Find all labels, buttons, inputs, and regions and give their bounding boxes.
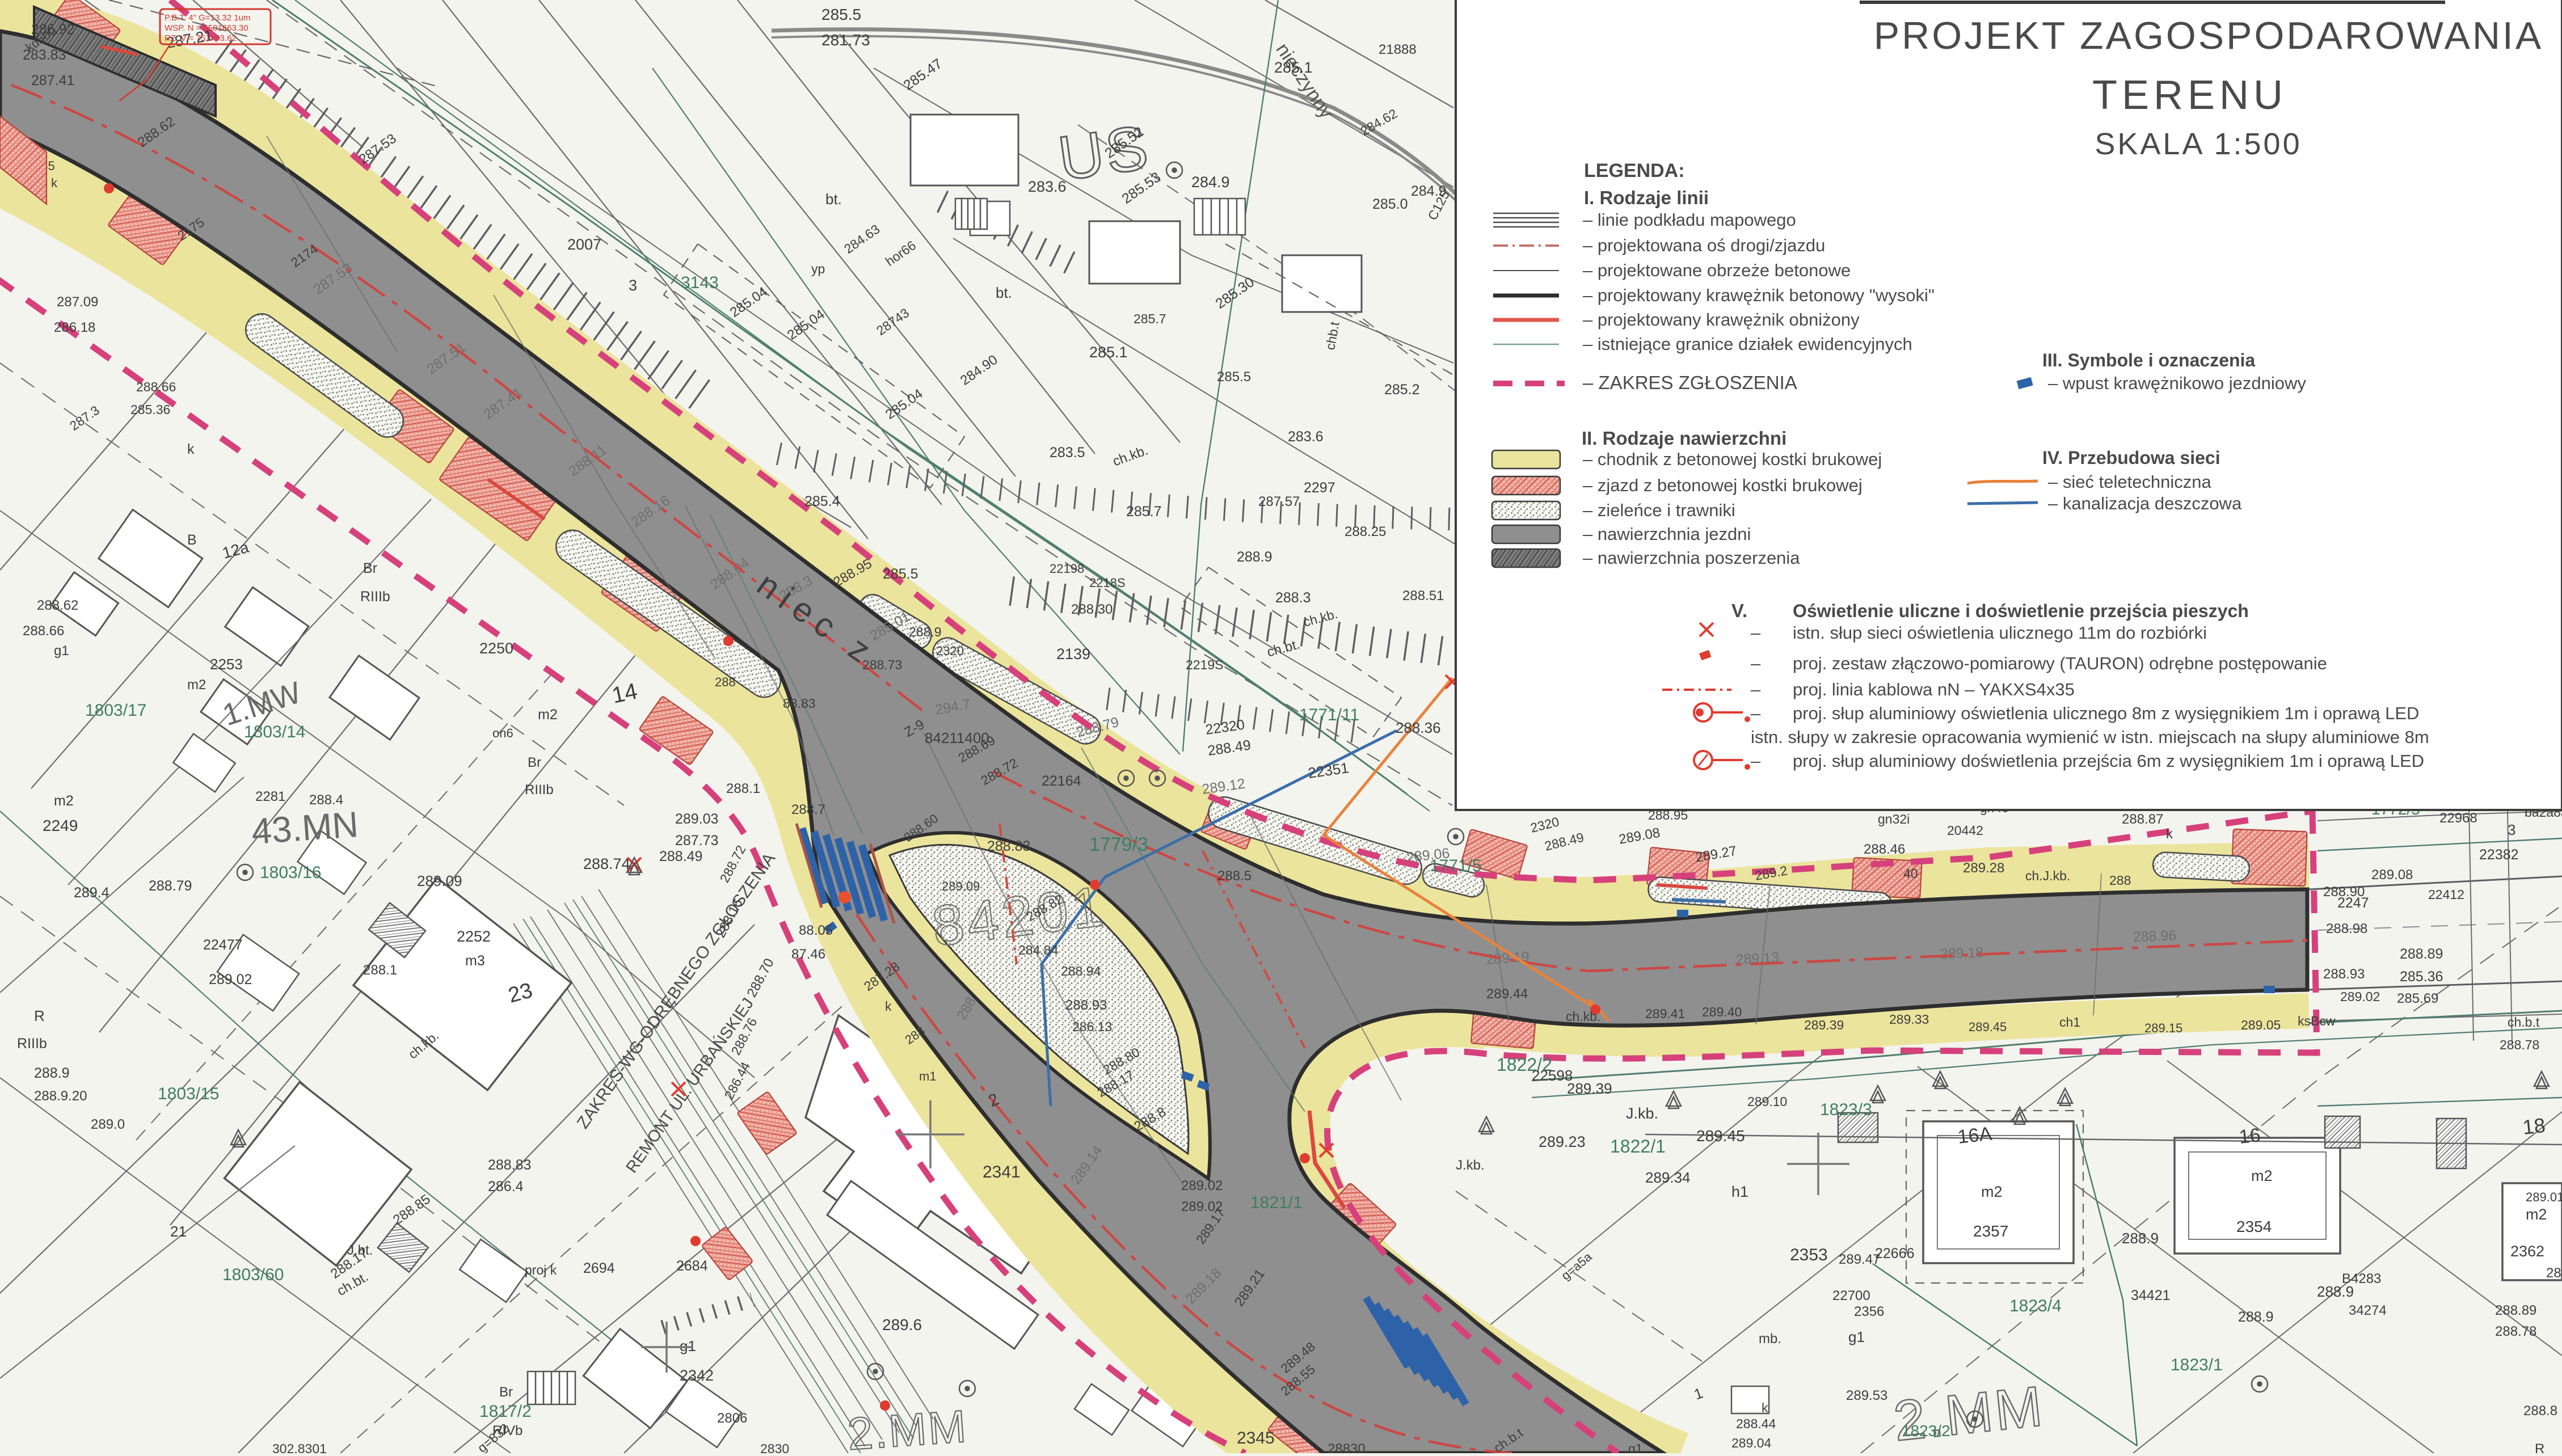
svg-text:288.9: 288.9 bbox=[909, 624, 942, 639]
svg-text:1803/16: 1803/16 bbox=[260, 863, 321, 882]
svg-text:1817/2: 1817/2 bbox=[479, 1402, 532, 1421]
svg-text:– projektowane obrzeże betono: – projektowane obrzeże betonowe bbox=[1583, 260, 1851, 280]
svg-text:g1: g1 bbox=[1628, 1441, 1643, 1453]
svg-text:281.73: 281.73 bbox=[821, 31, 870, 49]
svg-text:k: k bbox=[885, 999, 892, 1014]
svg-text:285.5: 285.5 bbox=[1217, 369, 1251, 385]
svg-text:1821/1: 1821/1 bbox=[1250, 1193, 1303, 1212]
svg-text:1823/4: 1823/4 bbox=[2009, 1297, 2062, 1315]
svg-text:B4283: B4283 bbox=[2342, 1271, 2381, 1286]
svg-text:istn. słup sieci oświetlenia u: istn. słup sieci oświetlenia ulicznego 1… bbox=[1793, 623, 2207, 643]
svg-text:288.83: 288.83 bbox=[488, 1157, 531, 1173]
svg-text:289.08: 289.08 bbox=[2371, 867, 2413, 883]
svg-text:283.6: 283.6 bbox=[1288, 429, 1324, 445]
svg-text:IV. Przebudowa sieci: IV. Przebudowa sieci bbox=[2042, 448, 2220, 468]
svg-text:302.8301: 302.8301 bbox=[272, 1441, 327, 1453]
svg-text:2297: 2297 bbox=[1304, 480, 1335, 496]
svg-text:istn. słupy w zakresie opracow: istn. słupy w zakresie opracowania wymie… bbox=[1751, 727, 2429, 747]
svg-text:288.9: 288.9 bbox=[2238, 1309, 2274, 1325]
svg-text:288.78: 288.78 bbox=[2500, 1037, 2539, 1052]
svg-text:P.B.T. 4" G=13.32 1um: P.B.T. 4" G=13.32 1um bbox=[165, 13, 250, 23]
svg-text:RIIIb: RIIIb bbox=[360, 589, 390, 605]
svg-text:289.15: 289.15 bbox=[2144, 1021, 2182, 1035]
svg-text:1771/5: 1771/5 bbox=[1430, 856, 1482, 875]
svg-text:288.93: 288.93 bbox=[2323, 967, 2365, 982]
svg-text:g1: g1 bbox=[680, 1337, 696, 1354]
svg-text:– projektowany krawężnik obni: – projektowany krawężnik obniżony bbox=[1583, 310, 1860, 330]
svg-text:285.5: 285.5 bbox=[883, 566, 918, 582]
svg-text:J.bt.: J.bt. bbox=[347, 1243, 373, 1258]
svg-text:RZ. V = 751+43.62: RZ. V = 751+43.62 bbox=[165, 33, 237, 43]
svg-text:k: k bbox=[1762, 1400, 1768, 1415]
svg-text:1823/2: 1823/2 bbox=[1902, 1422, 1950, 1440]
svg-text:16: 16 bbox=[2238, 1124, 2262, 1148]
svg-text:2345: 2345 bbox=[1237, 1429, 1275, 1447]
svg-text:288.74: 288.74 bbox=[583, 855, 630, 872]
svg-text:288.4: 288.4 bbox=[309, 792, 343, 808]
svg-text:288.49: 288.49 bbox=[659, 849, 702, 864]
svg-text:21888: 21888 bbox=[1379, 42, 1417, 57]
svg-text:34274: 34274 bbox=[2349, 1303, 2387, 1318]
svg-text:288.94: 288.94 bbox=[1061, 964, 1101, 978]
svg-text:proj k: proj k bbox=[525, 1263, 557, 1277]
svg-text:2139: 2139 bbox=[1056, 645, 1090, 662]
svg-text:289.02: 289.02 bbox=[2340, 989, 2380, 1004]
svg-text:1803/60: 1803/60 bbox=[222, 1265, 284, 1284]
svg-text:bt.: bt. bbox=[825, 191, 842, 208]
svg-text:288.87: 288.87 bbox=[2122, 812, 2163, 827]
svg-text:43.MN: 43.MN bbox=[250, 804, 360, 852]
svg-text:2341: 2341 bbox=[983, 1163, 1021, 1181]
svg-text:288.44: 288.44 bbox=[1736, 1416, 1776, 1431]
svg-text:285.36: 285.36 bbox=[130, 402, 170, 417]
svg-text:288.36: 288.36 bbox=[1396, 719, 1441, 736]
svg-text:289.23: 289.23 bbox=[1539, 1133, 1586, 1150]
svg-text:2249: 2249 bbox=[43, 817, 78, 834]
svg-text:– linie podkładu mapowego: – linie podkładu mapowego bbox=[1583, 210, 1796, 230]
svg-text:– istniejące granice działek: – istniejące granice działek ewidencyjny… bbox=[1583, 334, 1912, 354]
svg-text:289.4: 289.4 bbox=[74, 885, 109, 901]
svg-text:ch.b.t: ch.b.t bbox=[2508, 1015, 2540, 1029]
svg-text:2353: 2353 bbox=[1790, 1246, 1828, 1264]
svg-text:289.10: 289.10 bbox=[1747, 1094, 1787, 1109]
svg-text:2357: 2357 bbox=[1973, 1222, 2008, 1240]
svg-text:289.02: 289.02 bbox=[1181, 1178, 1223, 1193]
svg-text:288.96: 288.96 bbox=[2133, 927, 2176, 945]
svg-text:–: – bbox=[1751, 751, 1761, 771]
svg-text:2362: 2362 bbox=[2510, 1243, 2544, 1260]
svg-text:288.93: 288.93 bbox=[1065, 998, 1107, 1013]
svg-text:2007: 2007 bbox=[567, 236, 601, 253]
svg-text:289.34: 289.34 bbox=[1645, 1169, 1691, 1186]
svg-text:289.6: 289.6 bbox=[882, 1316, 922, 1333]
svg-text:289.44: 289.44 bbox=[1486, 986, 1528, 1002]
svg-text:1823/3: 1823/3 bbox=[1820, 1100, 1872, 1119]
svg-text:Br: Br bbox=[363, 560, 377, 576]
svg-text:283.5: 283.5 bbox=[1050, 445, 1085, 461]
svg-text:2320: 2320 bbox=[936, 644, 964, 658]
svg-text:proj. zestaw złączowo-pomiarow: proj. zestaw złączowo-pomiarowy (TAURON)… bbox=[1793, 653, 2327, 673]
svg-text:289.45: 289.45 bbox=[1696, 1127, 1745, 1145]
svg-text:22198: 22198 bbox=[1050, 562, 1084, 576]
svg-text:289.41: 289.41 bbox=[1645, 1006, 1685, 1021]
svg-text:22164: 22164 bbox=[1042, 773, 1081, 789]
svg-text:289.45: 289.45 bbox=[1969, 1020, 2007, 1034]
svg-text:289.39: 289.39 bbox=[1567, 1080, 1612, 1097]
svg-text:m1: m1 bbox=[919, 1069, 937, 1083]
svg-text:1779/3: 1779/3 bbox=[1089, 834, 1148, 855]
svg-text:285.1: 285.1 bbox=[1089, 344, 1128, 361]
svg-text:2684: 2684 bbox=[676, 1258, 708, 1274]
svg-text:288: 288 bbox=[715, 675, 736, 689]
svg-text:288.79: 288.79 bbox=[149, 878, 192, 894]
svg-text:J.kb.: J.kb. bbox=[1626, 1105, 1658, 1122]
svg-text:WSP. N = 5501663.30: WSP. N = 5501663.30 bbox=[165, 23, 248, 33]
svg-text:1823/1: 1823/1 bbox=[2171, 1356, 2223, 1374]
svg-text:289.0: 289.0 bbox=[91, 1117, 125, 1132]
svg-text:yp: yp bbox=[811, 261, 825, 276]
svg-text:RIIIb: RIIIb bbox=[525, 782, 554, 797]
svg-text:II. Rodzaje nawierzchni: II. Rodzaje nawierzchni bbox=[1582, 428, 1786, 449]
svg-text:285.0: 285.0 bbox=[1372, 196, 1408, 212]
svg-text:1822/1: 1822/1 bbox=[1610, 1136, 1666, 1157]
svg-text:ch.J.kb.: ch.J.kb. bbox=[2025, 868, 2070, 883]
svg-text:289.40: 289.40 bbox=[1702, 1005, 1742, 1019]
svg-text:proj. słup aluminiowy doświetl: proj. słup aluminiowy doświetlenia przej… bbox=[1793, 751, 2424, 771]
svg-text:289.04: 289.04 bbox=[1731, 1436, 1772, 1450]
svg-text:– ZAKRES ZGŁOSZENIA: – ZAKRES ZGŁOSZENIA bbox=[1583, 372, 1797, 393]
svg-text:2281: 2281 bbox=[255, 789, 285, 804]
svg-text:–: – bbox=[1751, 623, 1761, 643]
svg-text:1803/14: 1803/14 bbox=[244, 723, 305, 741]
svg-text:285.5: 285.5 bbox=[821, 6, 861, 23]
svg-text:289.53: 289.53 bbox=[1846, 1388, 1887, 1403]
svg-text:–: – bbox=[1751, 680, 1761, 699]
svg-text:m2: m2 bbox=[2526, 1206, 2547, 1223]
svg-text:14: 14 bbox=[610, 679, 640, 708]
svg-text:ch1: ch1 bbox=[2059, 1015, 2080, 1029]
svg-text:289.39: 289.39 bbox=[1804, 1018, 1844, 1032]
svg-text:I. Rodzaje linii: I. Rodzaje linii bbox=[1584, 187, 1709, 208]
svg-text:285.2: 285.2 bbox=[1384, 382, 1420, 398]
svg-text:20442: 20442 bbox=[1947, 823, 1983, 838]
svg-text:3143: 3143 bbox=[681, 273, 719, 292]
svg-text:288.7: 288.7 bbox=[791, 802, 825, 817]
svg-text:88.05: 88.05 bbox=[799, 923, 833, 938]
svg-text:22382: 22382 bbox=[2479, 847, 2519, 863]
svg-text:– sieć teletechniczna: – sieć teletechniczna bbox=[2048, 472, 2212, 492]
svg-text:– kanalizacja deszczowa: – kanalizacja deszczowa bbox=[2048, 493, 2242, 513]
svg-text:22700: 22700 bbox=[1832, 1288, 1870, 1303]
svg-text:289.09: 289.09 bbox=[942, 879, 980, 893]
svg-text:2694: 2694 bbox=[583, 1260, 615, 1276]
svg-text:288.8: 288.8 bbox=[2523, 1403, 2557, 1419]
svg-text:286.13: 286.13 bbox=[1072, 1019, 1112, 1034]
svg-text:289.09: 289.09 bbox=[417, 872, 462, 889]
svg-text:mb.: mb. bbox=[1759, 1331, 1781, 1347]
svg-text:285.36: 285.36 bbox=[2400, 969, 2443, 985]
svg-text:– zieleńce i trawniki: – zieleńce i trawniki bbox=[1583, 500, 1735, 520]
svg-text:1803/17: 1803/17 bbox=[85, 701, 146, 720]
svg-text:– nawierzchnia poszerzenia: – nawierzchnia poszerzenia bbox=[1583, 548, 1800, 568]
svg-text:288.51: 288.51 bbox=[1402, 588, 1444, 603]
svg-text:TERENU: TERENU bbox=[2092, 73, 2287, 118]
svg-text:22477: 22477 bbox=[203, 937, 243, 953]
svg-text:22968: 22968 bbox=[2439, 811, 2477, 826]
svg-text:g1: g1 bbox=[1848, 1328, 1865, 1345]
svg-text:284.84: 284.84 bbox=[1018, 943, 1059, 957]
svg-text:B: B bbox=[187, 532, 197, 548]
svg-text:22412: 22412 bbox=[2428, 887, 2464, 902]
svg-text:88.83: 88.83 bbox=[783, 696, 816, 711]
svg-text:proj. linia kablowa nN – YAK: proj. linia kablowa nN – YAKXS4x35 bbox=[1793, 680, 2075, 699]
svg-text:288.25: 288.25 bbox=[1345, 524, 1386, 539]
svg-text:288: 288 bbox=[2109, 873, 2131, 888]
svg-text:28830: 28830 bbox=[1328, 1441, 1366, 1453]
svg-text:2250: 2250 bbox=[479, 640, 513, 657]
svg-text:285.4: 285.4 bbox=[804, 493, 840, 509]
svg-text:21: 21 bbox=[170, 1223, 187, 1240]
svg-text:Br: Br bbox=[528, 755, 541, 770]
svg-text:289.02: 289.02 bbox=[209, 972, 252, 987]
svg-text:287.09: 287.09 bbox=[57, 294, 98, 310]
svg-text:2830: 2830 bbox=[760, 1441, 789, 1453]
svg-text:288.9: 288.9 bbox=[1237, 549, 1272, 565]
svg-text:289.47: 289.47 bbox=[1839, 1252, 1880, 1267]
svg-text:m2: m2 bbox=[538, 707, 558, 723]
svg-text:III. Symbole i oznaczenia: III. Symbole i oznaczenia bbox=[2042, 350, 2255, 370]
svg-text:k: k bbox=[51, 176, 58, 190]
svg-text:m2: m2 bbox=[54, 793, 74, 809]
svg-text:R: R bbox=[34, 1007, 45, 1024]
svg-text:285.69: 285.69 bbox=[2397, 991, 2438, 1006]
svg-text:285.1: 285.1 bbox=[1274, 59, 1313, 76]
svg-text:m2: m2 bbox=[187, 677, 206, 693]
svg-text:proj. słup aluminiowy oświetle: proj. słup aluminiowy oświetlenia uliczn… bbox=[1793, 703, 2419, 723]
svg-text:288.1: 288.1 bbox=[726, 781, 760, 796]
svg-text:288.62: 288.62 bbox=[37, 598, 78, 613]
svg-text:m3: m3 bbox=[465, 953, 485, 969]
svg-text:87.46: 87.46 bbox=[791, 947, 825, 962]
svg-text:Br: Br bbox=[499, 1385, 513, 1400]
svg-text:284.9: 284.9 bbox=[1191, 174, 1230, 191]
svg-text:2342: 2342 bbox=[680, 1367, 714, 1384]
svg-text:285.7: 285.7 bbox=[1133, 311, 1166, 326]
svg-text:PROJEKT ZAGOSPODAROWANIA: PROJEKT ZAGOSPODAROWANIA bbox=[1874, 14, 2543, 57]
svg-text:ch.kb.: ch.kb. bbox=[1566, 1009, 1600, 1024]
svg-text:22666: 22666 bbox=[1875, 1246, 1915, 1261]
svg-text:287.57: 287.57 bbox=[1258, 494, 1300, 509]
svg-text:288.78: 288.78 bbox=[2495, 1324, 2536, 1339]
svg-text:m2: m2 bbox=[1981, 1183, 2003, 1200]
svg-text:288.98: 288.98 bbox=[2326, 921, 2367, 936]
svg-text:288.66: 288.66 bbox=[23, 623, 64, 639]
svg-text:2219S: 2219S bbox=[1186, 657, 1224, 672]
svg-text:16A: 16A bbox=[1957, 1123, 1993, 1148]
svg-text:288.9: 288.9 bbox=[2546, 1265, 2562, 1281]
svg-text:288.9: 288.9 bbox=[34, 1065, 70, 1081]
svg-text:bt.: bt. bbox=[996, 284, 1012, 301]
svg-text:k: k bbox=[187, 441, 195, 457]
svg-text:ksBcw: ksBcw bbox=[2298, 1014, 2336, 1028]
svg-text:SKALA 1:500: SKALA 1:500 bbox=[2095, 127, 2302, 161]
svg-text:on6: on6 bbox=[492, 726, 513, 740]
svg-text:283.6: 283.6 bbox=[1028, 178, 1067, 195]
svg-text:– projektowana oś drogi/zjazd: – projektowana oś drogi/zjazdu bbox=[1583, 235, 1825, 255]
svg-text:2.MM: 2.MM bbox=[846, 1400, 970, 1453]
svg-text:288.66: 288.66 bbox=[136, 379, 176, 394]
svg-text:– projektowany krawężnik beto: – projektowany krawężnik betonowy "wysok… bbox=[1583, 285, 1935, 305]
svg-text:Oświetlenie uliczne i doświetl: Oświetlenie uliczne i doświetlenie przej… bbox=[1793, 601, 2249, 621]
svg-text:3: 3 bbox=[629, 277, 637, 294]
svg-text:3: 3 bbox=[2508, 821, 2515, 838]
svg-text:1803/15: 1803/15 bbox=[158, 1084, 219, 1103]
svg-text:40: 40 bbox=[1903, 866, 1918, 881]
svg-text:286.18: 286.18 bbox=[54, 320, 95, 335]
svg-text:m2: m2 bbox=[2251, 1167, 2273, 1184]
svg-text:LEGENDA:: LEGENDA: bbox=[1584, 160, 1685, 182]
svg-text:2253: 2253 bbox=[210, 656, 243, 673]
svg-text:h1: h1 bbox=[1731, 1183, 1748, 1200]
svg-text:34421: 34421 bbox=[2131, 1288, 2171, 1303]
svg-text:–: – bbox=[1751, 703, 1761, 723]
svg-text:285.7: 285.7 bbox=[1126, 504, 1162, 520]
svg-text:288.89: 288.89 bbox=[2495, 1303, 2536, 1318]
svg-text:288.9.20: 288.9.20 bbox=[34, 1088, 87, 1104]
svg-text:V.: V. bbox=[1731, 600, 1747, 621]
svg-text:2354: 2354 bbox=[2236, 1218, 2272, 1235]
svg-text:288.83: 288.83 bbox=[987, 838, 1030, 854]
svg-text:288.3: 288.3 bbox=[1275, 590, 1311, 606]
svg-text:289.03: 289.03 bbox=[675, 811, 718, 827]
svg-text:289.01: 289.01 bbox=[2526, 1190, 2562, 1204]
svg-text:R: R bbox=[2535, 1441, 2544, 1453]
svg-text:286.4: 286.4 bbox=[488, 1179, 524, 1195]
svg-text:288.9: 288.9 bbox=[2122, 1230, 2159, 1247]
svg-text:289.28: 289.28 bbox=[1963, 860, 2004, 876]
svg-text:1771/11: 1771/11 bbox=[1299, 706, 1359, 724]
svg-text:288.89: 288.89 bbox=[2400, 946, 2443, 962]
svg-text:–: – bbox=[1751, 653, 1761, 673]
svg-text:288.73: 288.73 bbox=[862, 657, 902, 672]
svg-text:18: 18 bbox=[2522, 1113, 2547, 1139]
svg-text:2806: 2806 bbox=[717, 1411, 747, 1426]
svg-text:– wpust krawężnikowo jezdniow: – wpust krawężnikowo jezdniowy bbox=[2048, 373, 2306, 393]
svg-text:289.33: 289.33 bbox=[1889, 1012, 1929, 1027]
svg-text:2218S: 2218S bbox=[1089, 576, 1126, 590]
svg-text:– nawierzchnia jezdni: – nawierzchnia jezdni bbox=[1583, 524, 1751, 544]
svg-text:– zjazd z betonowej kostki br: – zjazd z betonowej kostki brukowej bbox=[1583, 475, 1862, 495]
svg-text:J.kb.: J.kb. bbox=[1456, 1158, 1485, 1173]
svg-text:288.30: 288.30 bbox=[1071, 602, 1113, 617]
svg-text:k: k bbox=[2166, 826, 2173, 842]
svg-text:288.46: 288.46 bbox=[1864, 842, 1905, 857]
svg-text:gn32i: gn32i bbox=[1878, 812, 1910, 826]
svg-text:288.5: 288.5 bbox=[1217, 868, 1251, 884]
svg-text:289.05: 289.05 bbox=[2241, 1018, 2281, 1032]
svg-text:288.1: 288.1 bbox=[363, 963, 397, 978]
svg-text:g1: g1 bbox=[54, 643, 69, 659]
svg-text:2356: 2356 bbox=[1854, 1304, 1884, 1319]
svg-text:2252: 2252 bbox=[457, 928, 491, 945]
svg-text:288.90: 288.90 bbox=[2323, 884, 2365, 900]
svg-text:RIIIb: RIIIb bbox=[17, 1036, 47, 1052]
svg-text:– chodnik z betonowej kostki: – chodnik z betonowej kostki brukowej bbox=[1583, 449, 1882, 469]
svg-text:287.73: 287.73 bbox=[675, 833, 718, 849]
svg-text:287.41: 287.41 bbox=[31, 73, 74, 88]
